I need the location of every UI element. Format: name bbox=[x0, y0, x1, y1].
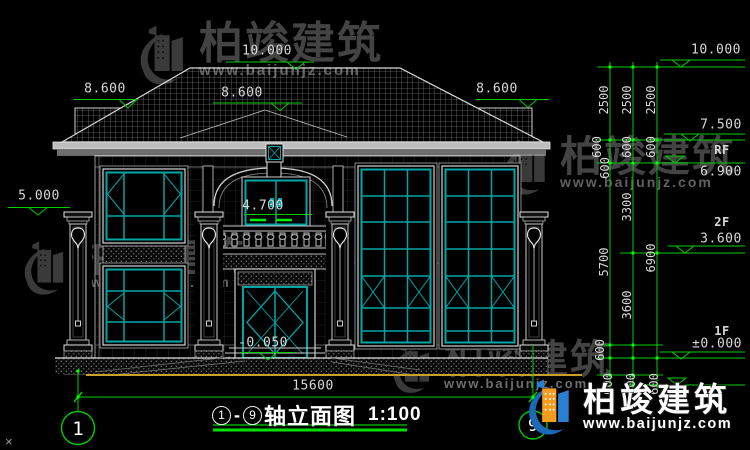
level-right-roof: 6.900 bbox=[700, 165, 742, 180]
vdim-b-0: 2500 bbox=[620, 86, 634, 115]
window-right-1 bbox=[355, 163, 437, 349]
dim-total-width: 15600 bbox=[292, 379, 334, 394]
floor-label-rf: RF bbox=[714, 143, 729, 157]
title-scale: 1:100 bbox=[368, 404, 422, 426]
spandrel-panel bbox=[103, 246, 185, 263]
lamp-pillar bbox=[64, 212, 92, 374]
window-left-1f bbox=[100, 263, 188, 348]
vdim-a-3: 5700 bbox=[597, 248, 611, 277]
level-bay-ridge: 8.600 bbox=[221, 86, 263, 101]
lamp-pillar bbox=[195, 212, 223, 374]
vdim-b-3: 3600 bbox=[620, 291, 634, 320]
roof bbox=[62, 68, 543, 142]
level-ridge: 10.000 bbox=[242, 44, 292, 59]
vdim-a-4: 600 bbox=[593, 339, 607, 361]
level-pillar-top: 5.000 bbox=[18, 189, 60, 204]
brand-glyph-color-icon bbox=[524, 376, 578, 438]
eave-cornice bbox=[53, 142, 550, 155]
brand-logo: 柏竣建筑 www.baijunjz.com bbox=[524, 376, 732, 438]
lamp-pillar bbox=[520, 212, 548, 374]
title-axis-end: 9 bbox=[243, 406, 262, 425]
vdim-c-2: 6900 bbox=[644, 244, 658, 273]
vdim-b-1: 600 bbox=[620, 136, 634, 158]
vdim-a-1: 600 bbox=[590, 136, 604, 158]
level-right-2f: 3.600 bbox=[700, 232, 742, 247]
axis-digit-1: 1 bbox=[72, 418, 83, 440]
vdim-c-0: 2500 bbox=[644, 86, 658, 115]
level-eave-left: 8.600 bbox=[84, 82, 126, 97]
level-balcony-sill: 4.700 bbox=[242, 199, 284, 214]
ground bbox=[55, 357, 582, 375]
drawing-title: 1 - 9 轴立面图 1:100 bbox=[212, 399, 422, 431]
title-name: 轴立面图 bbox=[264, 399, 356, 431]
vdim-a-0: 2500 bbox=[597, 86, 611, 115]
vdim-c-1: 600 bbox=[644, 136, 658, 158]
level-right-zero: ±0.000 bbox=[692, 337, 742, 352]
attic-vent bbox=[266, 144, 283, 162]
window-left-2f bbox=[100, 166, 188, 246]
level-right-parapet: 7.500 bbox=[700, 118, 742, 133]
level-right-ridge: 10.000 bbox=[691, 43, 741, 58]
floor-label-2f: 2F bbox=[714, 215, 729, 229]
corner-mark: × bbox=[5, 434, 13, 449]
vdim-b-2: 3300 bbox=[620, 193, 634, 222]
window-right-2 bbox=[439, 163, 521, 349]
lamp-pillar bbox=[326, 212, 354, 374]
brand-url-text: www.baijunjz.com bbox=[583, 416, 732, 432]
level-entrance: -0.050 bbox=[238, 336, 288, 351]
vdim-a-2: 600 bbox=[598, 157, 612, 179]
brand-name-text: 柏竣建筑 bbox=[583, 383, 732, 416]
cad-canvas: 柏竣建筑 www.baijunjz.com 柏竣建筑 www.baijunjz.… bbox=[0, 0, 750, 450]
title-separator: - bbox=[234, 405, 240, 426]
level-eave-right: 8.600 bbox=[476, 82, 518, 97]
title-axis-start: 1 bbox=[212, 406, 231, 425]
